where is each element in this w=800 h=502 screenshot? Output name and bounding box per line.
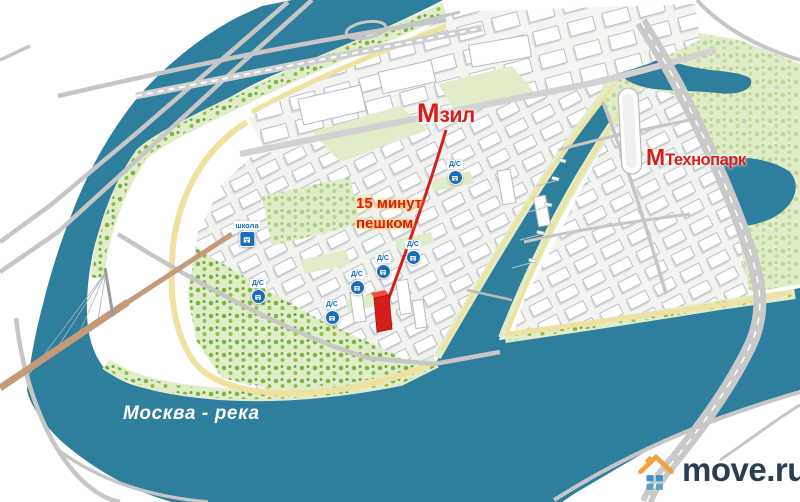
kindergarten-label: Д/С xyxy=(324,300,340,309)
walk-time-label: 15 минут пешком xyxy=(356,196,422,236)
kindergarten-circle-icon xyxy=(325,310,340,325)
brand-name: move.ru xyxy=(682,451,800,489)
kindergarten-label: Д/С xyxy=(250,279,266,288)
kindergarten-poi: Д/С xyxy=(405,240,421,265)
metro-m-icon: М xyxy=(646,144,665,170)
school-poi: школа xyxy=(233,221,260,247)
river-name-label: Москва - река xyxy=(123,404,260,423)
metro-label-tehnopark: МТехнопарк xyxy=(646,146,746,169)
metro-m-icon: М xyxy=(417,98,440,128)
kindergarten-poi: Д/С xyxy=(250,279,266,304)
walk-time-line2: пешком xyxy=(356,216,422,231)
metro-station-name: зил xyxy=(440,104,475,127)
kindergarten-circle-icon xyxy=(448,170,463,185)
highlighted-building-body xyxy=(374,295,392,332)
school-label: школа xyxy=(233,221,260,230)
school-square-icon xyxy=(239,231,255,247)
house-icon xyxy=(637,447,675,493)
metro-label-zil: Мзил xyxy=(417,100,475,127)
walk-time-line1: 15 минут xyxy=(356,196,422,211)
metro-station-name: Технопарк xyxy=(665,151,745,169)
moveru-logo: move.ru xyxy=(637,447,800,493)
kindergarten-label: Д/С xyxy=(447,160,463,169)
kindergarten-poi: Д/С xyxy=(324,300,340,325)
map-canvas: Мзил МТехнопарк 15 минут пешком Москва -… xyxy=(0,0,800,502)
city-map-render xyxy=(0,0,800,502)
kindergarten-label: Д/С xyxy=(349,270,365,279)
kindergarten-circle-icon xyxy=(251,289,266,304)
kindergarten-circle-icon xyxy=(406,250,421,265)
kindergarten-label: Д/С xyxy=(375,254,391,263)
kindergarten-poi: Д/С xyxy=(349,270,365,295)
kindergarten-poi: Д/С xyxy=(375,254,391,279)
kindergarten-circle-icon xyxy=(376,264,391,279)
kindergarten-poi: Д/С xyxy=(447,160,463,185)
kindergarten-circle-icon xyxy=(350,280,365,295)
kindergarten-label: Д/С xyxy=(405,240,421,249)
